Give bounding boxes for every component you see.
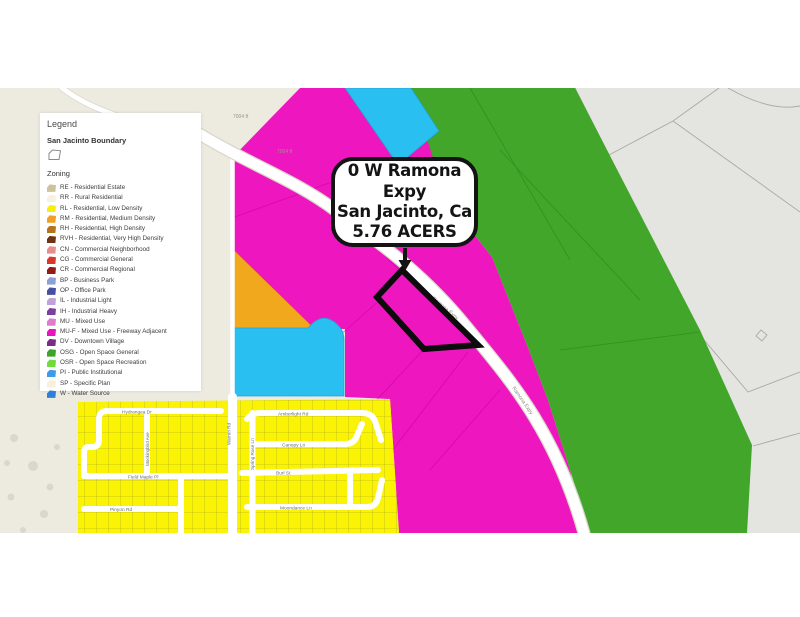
- zone-label: RR - Rural Residential: [60, 195, 123, 201]
- zone-label: MU - Mixed Use: [60, 319, 105, 325]
- street-label: Pinyon Rd: [110, 507, 132, 513]
- zone-color-swatch: [47, 287, 56, 295]
- legend-item-osr: OSR - Open Space Recreation: [47, 358, 194, 368]
- callout-city-line: San Jacinto, Ca: [337, 202, 472, 222]
- legend-item-sp: SP - Specific Plan: [47, 379, 194, 389]
- legend-item-osg: OSG - Open Space General: [47, 348, 194, 358]
- zoning-map-page: 7004 ft 7004 ft Ramona Expy Ramona Expy …: [0, 0, 800, 617]
- zone-color-swatch: [47, 329, 56, 337]
- zone-color-swatch: [47, 184, 56, 192]
- zone-label: MU-F - Mixed Use - Freeway Adjacent: [60, 329, 167, 335]
- legend-title: Legend: [47, 119, 194, 129]
- street-label: Field Maple Pl: [128, 475, 158, 481]
- distance-label: 7004 ft: [233, 114, 249, 120]
- street-label: Amberlight Rd: [278, 412, 309, 418]
- street-label: Warren Rd: [227, 423, 232, 445]
- zone-color-swatch: [47, 380, 56, 388]
- legend-item-op: OP - Office Park: [47, 286, 194, 296]
- zone-color-swatch: [47, 370, 56, 378]
- zone-color-swatch: [47, 236, 56, 244]
- legend-item-dv: DV - Downtown Village: [47, 337, 194, 347]
- street-label: Canopy Ln: [282, 443, 306, 449]
- zone-color-swatch: [47, 308, 56, 316]
- zone-label: RVH - Residential, Very High Density: [60, 236, 163, 242]
- zone-color-swatch: [47, 246, 56, 254]
- zone-label: PI - Public Institutional: [60, 370, 122, 376]
- legend-item-rl: RL - Residential, Low Density: [47, 204, 194, 214]
- callout-acreage-line: 5.76 ACERS: [352, 222, 456, 242]
- property-callout: 0 W Ramona Expy San Jacinto, Ca 5.76 ACE…: [331, 157, 478, 247]
- zone-label: OP - Office Park: [60, 288, 106, 294]
- zone-label: IL - Industrial Light: [60, 298, 112, 304]
- zone-color-swatch: [47, 195, 56, 203]
- zone-color-swatch: [47, 359, 56, 367]
- street-label: Hydrangea Dr: [122, 410, 152, 416]
- zone-label: RE - Residential Estate: [60, 185, 125, 191]
- zone-label: SP - Specific Plan: [60, 381, 110, 387]
- zone-color-swatch: [47, 215, 56, 223]
- legend-item-bp: BP - Business Park: [47, 276, 194, 286]
- zone-label: OSR - Open Space Recreation: [60, 360, 146, 366]
- zone-color-swatch: [47, 318, 56, 326]
- zone-color-swatch: [47, 339, 56, 347]
- street-label: Mockingbird Ave: [145, 432, 150, 466]
- zone-label: BP - Business Park: [60, 278, 114, 284]
- legend-items: RE - Residential Estate RR - Rural Resid…: [47, 183, 194, 399]
- legend-panel: Legend San Jacinto Boundary Zoning RE - …: [40, 113, 201, 391]
- zone-label: CR - Commercial Regional: [60, 267, 135, 273]
- legend-item-mu-f: MU-F - Mixed Use - Freeway Adjacent: [47, 327, 194, 337]
- street-label: Spring Rose Ln: [250, 438, 255, 470]
- legend-item-cr: CR - Commercial Regional: [47, 265, 194, 275]
- legend-item-cg: CG - Commercial General: [47, 255, 194, 265]
- legend-boundary-heading: San Jacinto Boundary: [47, 136, 194, 145]
- legend-item-rvh: RVH - Residential, Very High Density: [47, 234, 194, 244]
- zone-color-swatch: [47, 349, 56, 357]
- legend-zoning-heading: Zoning: [47, 169, 194, 178]
- street-label: Moondance Ln: [280, 506, 312, 512]
- callout-address-line: 0 W Ramona Expy: [335, 161, 474, 202]
- legend-item-re: RE - Residential Estate: [47, 183, 194, 193]
- zone-label: DV - Downtown Village: [60, 339, 124, 345]
- zone-label: CG - Commercial General: [60, 257, 133, 263]
- street-label: Burl St: [276, 471, 291, 477]
- legend-item-mu: MU - Mixed Use: [47, 317, 194, 327]
- zone-label: RL - Residential, Low Density: [60, 206, 142, 212]
- legend-item-w: W - Water Source: [47, 389, 194, 399]
- zone-label: RH - Residential, High Density: [60, 226, 145, 232]
- zone-label: IH - Industrial Heavy: [60, 309, 117, 315]
- distance-label: 7004 ft: [277, 149, 293, 155]
- zone-color-swatch: [47, 226, 56, 234]
- zone-color-swatch: [47, 205, 56, 213]
- zone-label: CN - Commercial Neighborhood: [60, 247, 150, 253]
- legend-item-il: IL - Industrial Light: [47, 296, 194, 306]
- legend-item-cn: CN - Commercial Neighborhood: [47, 245, 194, 255]
- zone-color-swatch: [47, 390, 56, 398]
- legend-item-ih: IH - Industrial Heavy: [47, 307, 194, 317]
- zone-color-swatch: [47, 256, 56, 264]
- zone-label: OSG - Open Space General: [60, 350, 139, 356]
- zone-label: W - Water Source: [60, 391, 110, 397]
- zone-color-swatch: [47, 267, 56, 275]
- legend-item-rm: RM - Residential, Medium Density: [47, 214, 194, 224]
- zone-color-swatch: [47, 277, 56, 285]
- legend-item-rr: RR - Rural Residential: [47, 193, 194, 203]
- polygon-outline-icon: [48, 149, 62, 161]
- legend-item-pi: PI - Public Institutional: [47, 368, 194, 378]
- legend-item-rh: RH - Residential, High Density: [47, 224, 194, 234]
- zone-public-institutional-center: [233, 318, 344, 396]
- zone-color-swatch: [47, 298, 56, 306]
- zone-label: RM - Residential, Medium Density: [60, 216, 155, 222]
